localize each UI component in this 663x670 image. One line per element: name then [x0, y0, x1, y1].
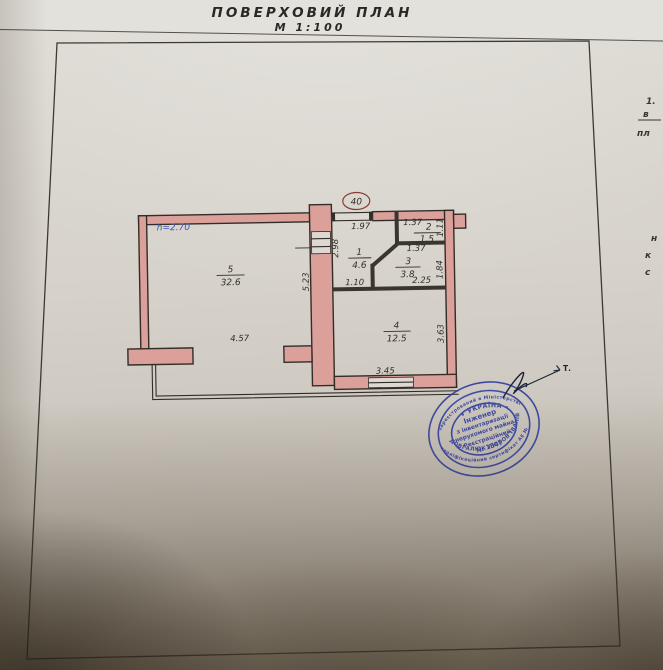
floor-plan: 40 h=2.70 5 32.6 1 4.6 2 1.5: [125, 191, 468, 400]
wall-bottom5-pilaster: [128, 348, 193, 365]
partition-diagonal: [372, 244, 397, 265]
dim-298: 2.98: [331, 238, 341, 258]
fragment-6: с: [645, 268, 651, 278]
document-photo: ПОВЕРХОВИЙ ПЛАН М 1:100: [0, 0, 663, 670]
room1-area: 4.6: [352, 261, 367, 271]
fragment-4: н: [651, 234, 657, 244]
room4-label: 4 12.5: [383, 321, 410, 344]
document-scene: ПОВЕРХОВИЙ ПЛАН М 1:100: [0, 0, 663, 670]
apartment-number: 40: [350, 197, 362, 207]
room5-area: 32.6: [221, 278, 241, 288]
fragment-3: пл: [637, 129, 650, 139]
apartment-number-badge: 40: [343, 192, 370, 209]
room1-number: 1: [356, 248, 362, 258]
window-mid-line: [368, 382, 413, 383]
dim-137-top: 1.37: [403, 218, 423, 228]
dim-137-mid: 1.37: [407, 244, 427, 254]
dim-197: 1.97: [351, 222, 371, 232]
dim-457: 4.57: [230, 334, 250, 344]
dim-184: 1.84: [435, 260, 445, 279]
height-note: h=2.70: [157, 223, 191, 234]
room4-area: 12.5: [387, 334, 407, 344]
wall-right-stub: [454, 214, 466, 228]
scale-label: М 1:100: [275, 21, 346, 34]
wall-right: [444, 210, 456, 387]
wall-left: [139, 216, 149, 356]
dim-111: 1.11: [436, 218, 446, 237]
room5-label: 5 32.6: [216, 265, 244, 288]
room5-number: 5: [228, 265, 234, 275]
signature: Т.: [503, 364, 571, 398]
fragment-2: в: [643, 110, 649, 120]
partition-room2-left: [394, 211, 399, 245]
room2-number: 2: [426, 223, 432, 233]
side-text-fragments: 1. в пл н к с: [637, 97, 661, 278]
fragment-5: к: [645, 251, 652, 261]
dim-110: 1.10: [345, 278, 364, 288]
room1-label: 1 4.6: [348, 248, 371, 271]
room4-number: 4: [394, 321, 400, 331]
door-jamb-right: [369, 212, 373, 221]
dim-363: 3.63: [436, 324, 446, 343]
door-line-top: [331, 212, 372, 213]
dim-345: 3.45: [376, 366, 395, 376]
page-title: ПОВЕРХОВИЙ ПЛАН: [212, 4, 413, 21]
door-line-bottom: [332, 220, 373, 221]
partition-room3-left: [370, 264, 374, 290]
wall-bottom5-block: [284, 346, 312, 362]
room3-number: 3: [405, 257, 411, 267]
fragment-1: 1.: [646, 97, 656, 107]
signature-arrowhead: [554, 366, 561, 371]
door-jamb-left: [331, 212, 335, 221]
vent-shaft: [311, 231, 330, 253]
dim-225: 2.25: [412, 276, 431, 286]
signature-label: Т.: [563, 364, 571, 373]
dim-523: 5.23: [302, 272, 312, 291]
